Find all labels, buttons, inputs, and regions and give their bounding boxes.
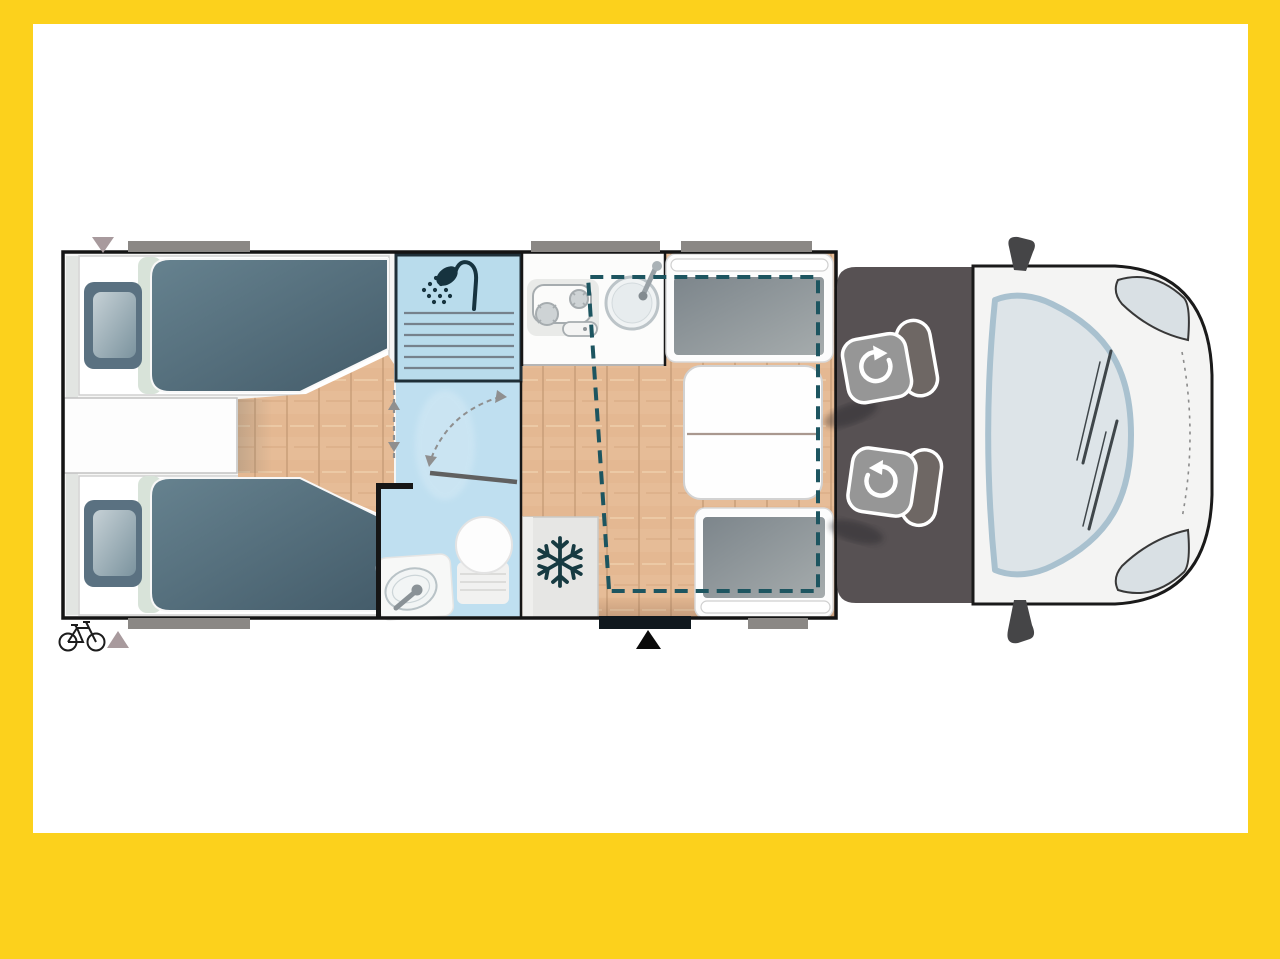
fridge (523, 517, 598, 618)
storage-flap (128, 618, 250, 629)
center-step (64, 398, 237, 473)
dealer-banner: GmbH REISEMOBILE Mobile Freizeit genieße… (0, 833, 1280, 959)
washbasin (376, 553, 454, 620)
bench-rear (695, 508, 833, 618)
toilet (456, 517, 512, 604)
advert-image: GmbH REISEMOBILE Mobile Freizeit genieße… (0, 0, 1280, 959)
mirror-icon (1007, 600, 1034, 643)
storage-flap (748, 618, 808, 629)
entrance-arrow-icon (636, 630, 661, 649)
motorhome-floorplan (0, 0, 1280, 959)
cab-floor (837, 267, 973, 603)
vent-triangle-icon (107, 631, 129, 648)
driver-cab (821, 237, 1212, 643)
storage-flap (128, 241, 250, 252)
bedroom-twin-beds (63, 253, 396, 618)
vehicle-front (973, 237, 1212, 643)
storage-flap (531, 241, 660, 252)
entrance-step (599, 616, 691, 629)
bicycle-icon (60, 622, 105, 651)
dinette-table (684, 366, 822, 499)
bench-front (666, 254, 833, 362)
shower-cubicle (396, 255, 521, 381)
storage-flap (681, 241, 812, 252)
washroom (376, 253, 521, 620)
